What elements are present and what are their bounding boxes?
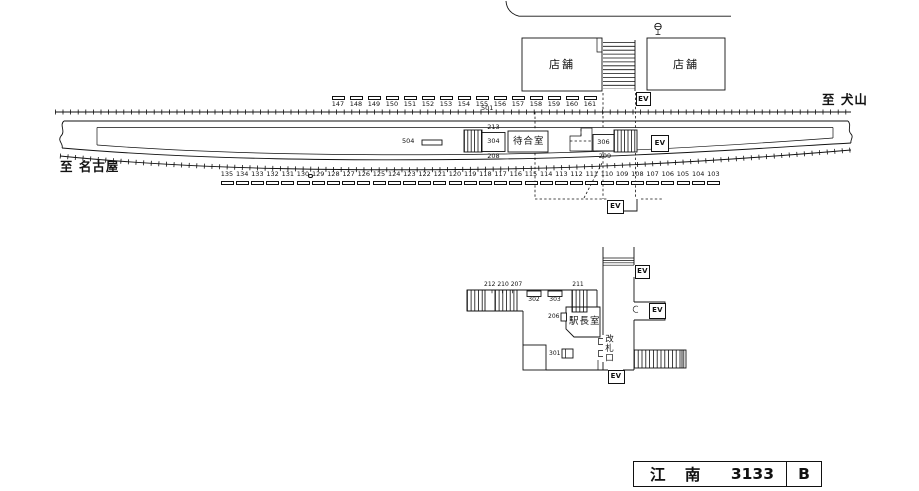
diagram-linework — [0, 0, 919, 491]
platform-marker-number: 161 — [579, 101, 601, 108]
bench-marker — [570, 181, 583, 185]
bench-marker — [677, 181, 690, 185]
elevator-building-box: EV — [608, 370, 625, 385]
label-302: 302 — [526, 297, 542, 303]
label-306: 306 — [593, 139, 614, 146]
island-platform — [60, 121, 852, 160]
label-304: 304 — [482, 138, 505, 145]
building-room-southwest — [523, 345, 546, 370]
bench-marker — [350, 96, 363, 100]
bench-marker — [357, 181, 370, 185]
direction-to-nagoya: 至 名古屋 — [60, 161, 119, 174]
bench-marker — [530, 96, 543, 100]
label-208: 208 — [482, 153, 505, 160]
label-213: 213 — [482, 124, 505, 131]
sheet-code: B — [787, 462, 821, 486]
bench-marker — [266, 181, 279, 185]
bench-marker — [403, 181, 416, 185]
waiting-room-label: 待合室 — [513, 137, 545, 147]
bench-marker — [418, 181, 431, 185]
label-301: 301 — [549, 351, 560, 357]
bench-marker — [327, 181, 340, 185]
elevator-concourse-box: EV — [636, 92, 651, 106]
bench-marker — [540, 181, 553, 185]
ticket-gate-machines — [599, 339, 604, 357]
label-504: 504 — [402, 138, 414, 145]
bench-marker — [236, 181, 249, 185]
bench-marker — [601, 181, 614, 185]
elevator-nook-box: EV — [649, 303, 666, 319]
bench-marker — [585, 181, 598, 185]
bench-marker — [646, 181, 659, 185]
equipment-301-box — [562, 349, 573, 358]
bench-marker — [707, 181, 720, 185]
title-left-cell: 江 南 3133 — [634, 462, 787, 486]
shop-right-label: 店舗 — [673, 59, 699, 70]
platform-kiosk-outline — [570, 128, 592, 151]
bench-marker — [631, 181, 644, 185]
bench-marker — [566, 96, 579, 100]
bench-marker — [312, 181, 325, 185]
label-206: 206 — [548, 314, 559, 320]
bench-marker — [368, 96, 381, 100]
equipment-206-box — [561, 313, 567, 321]
direction-to-inuyama: 至 犬山 — [822, 94, 868, 107]
bench-marker — [422, 96, 435, 100]
bench-marker — [555, 181, 568, 185]
bench-marker — [512, 96, 525, 100]
bench-marker — [509, 181, 522, 185]
door-swing-mark — [633, 306, 638, 312]
bench-marker — [386, 96, 399, 100]
bench-marker — [661, 181, 674, 185]
bench-marker — [464, 181, 477, 185]
bench-marker — [297, 181, 310, 185]
drawing-number: 3133 — [731, 465, 774, 483]
stationmaster-room-label: 駅長室 — [569, 317, 601, 327]
bench-marker — [332, 96, 345, 100]
bridge-hatch-lines — [603, 258, 634, 265]
label-211: 211 — [570, 282, 586, 288]
elevator-tracklevel-box: EV — [607, 200, 624, 215]
label-501: 501 — [481, 105, 493, 112]
bench-marker — [479, 181, 492, 185]
elevator-platform-box: EV — [651, 135, 669, 152]
drawing-title-box: 江 南 3133 B — [633, 461, 822, 487]
concourse-boundary-line — [506, 1, 731, 16]
bench-marker — [692, 181, 705, 185]
equipment-504-box — [422, 140, 442, 145]
ticket-gate-label: 改札口 — [604, 334, 613, 363]
bench-marker — [433, 181, 446, 185]
bench-marker — [458, 96, 471, 100]
bench-marker — [494, 181, 507, 185]
bench-marker — [221, 181, 234, 185]
bench-marker — [494, 96, 507, 100]
shop-left-label: 店舗 — [549, 59, 575, 70]
label-212-210-207: 212 210 207 — [484, 282, 522, 288]
bench-marker — [525, 181, 538, 185]
pillar-circle-marker — [308, 174, 312, 178]
platform-stairs-west — [464, 130, 482, 152]
bench-marker — [404, 96, 417, 100]
upper-concourse — [506, 1, 731, 91]
bench-marker — [251, 181, 264, 185]
platform-marker-number: 103 — [702, 171, 724, 178]
bench-marker — [281, 181, 294, 185]
station-name: 江 南 — [650, 463, 702, 485]
bench-marker — [449, 181, 462, 185]
label-209: 209 — [596, 153, 614, 160]
label-303: 303 — [547, 297, 563, 303]
bench-marker — [388, 181, 401, 185]
bench-marker — [584, 96, 597, 100]
station-diagram-page: 1471481491501511521531541551561571581591… — [0, 0, 919, 491]
pole-lamp-icon — [655, 23, 661, 34]
bench-marker — [476, 96, 489, 100]
bench-marker — [616, 181, 629, 185]
bench-marker — [440, 96, 453, 100]
elevator-corridor-top-box: EV — [635, 265, 650, 279]
bench-marker — [373, 181, 386, 185]
bench-marker — [342, 181, 355, 185]
bench-marker — [548, 96, 561, 100]
